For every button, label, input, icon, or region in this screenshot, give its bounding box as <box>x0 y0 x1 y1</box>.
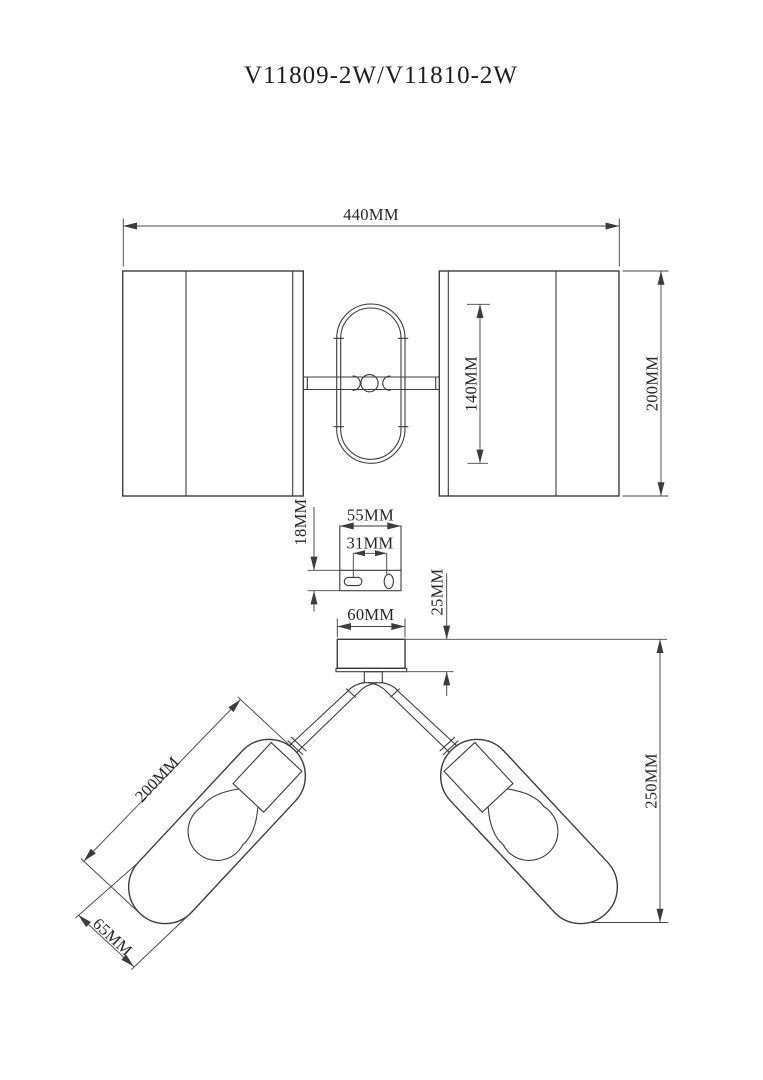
canopy-height-label: 25MM <box>428 568 447 615</box>
flange-height-label: 18MM <box>291 498 310 545</box>
canopy-diameter-label: 60MM <box>347 605 394 624</box>
technical-drawing-canvas: V11809-2W/V11810-2W 440MM <box>0 0 763 1080</box>
shade-height-label: 200MM <box>643 356 662 412</box>
drawing-page: V11809-2W/V11810-2W 440MM <box>0 0 763 1080</box>
overall-drop-label: 250MM <box>642 753 661 809</box>
hole-spacing-label: 31MM <box>346 534 393 553</box>
drawing-title: V11809-2W/V11810-2W <box>244 62 518 89</box>
plate-width-label: 55MM <box>347 506 394 525</box>
frame-height-label: 140MM <box>462 356 481 412</box>
dimension-plate-width: 55MM <box>340 506 401 530</box>
overall-width-label: 440MM <box>343 205 399 224</box>
